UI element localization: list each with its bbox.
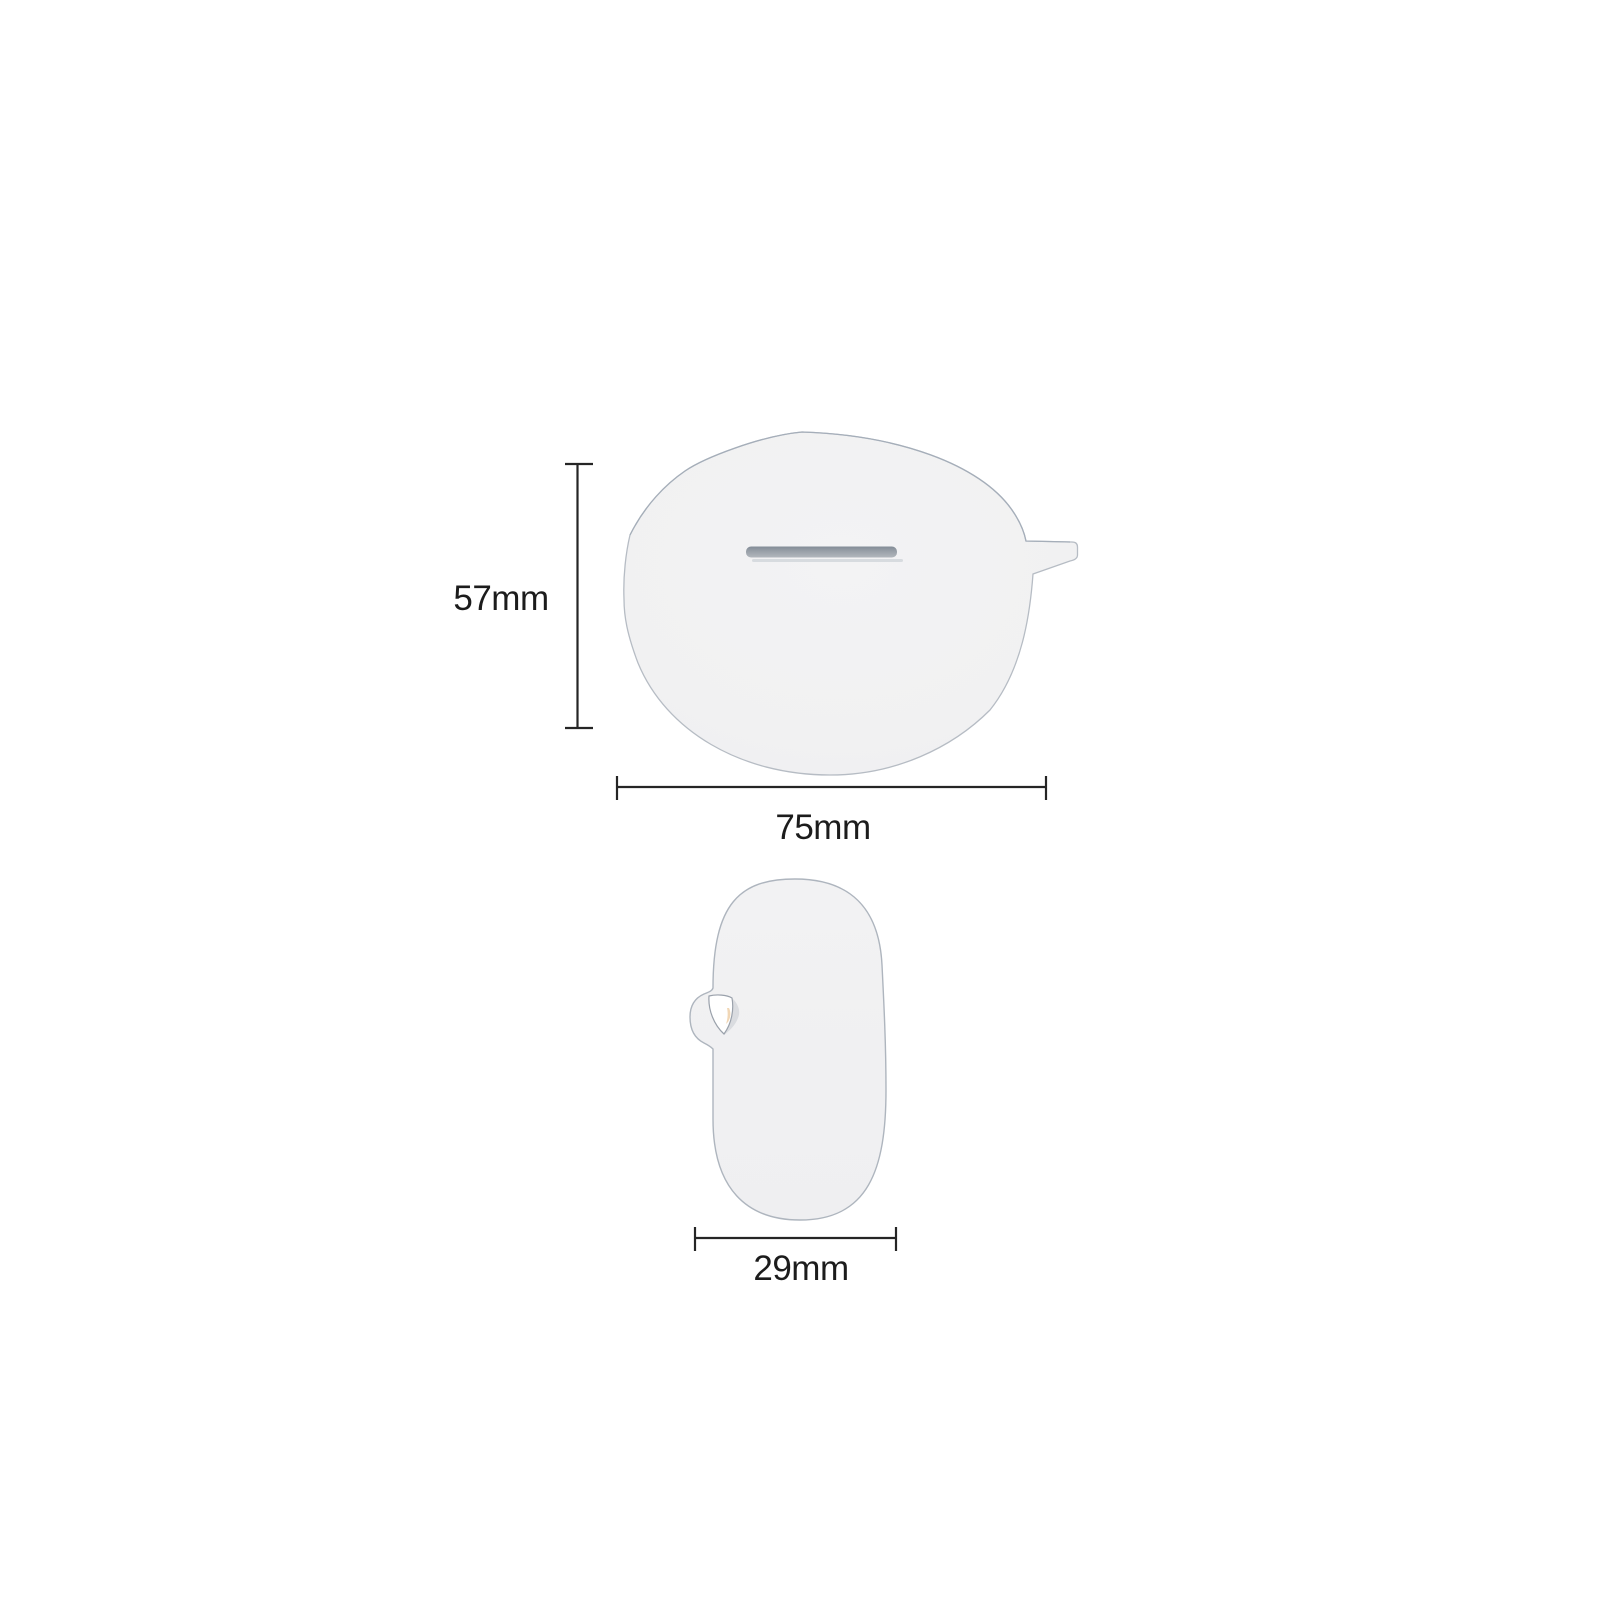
svg-text:75mm: 75mm [775,808,870,847]
svg-text:29mm: 29mm [753,1249,848,1288]
svg-text:57mm: 57mm [453,579,548,618]
